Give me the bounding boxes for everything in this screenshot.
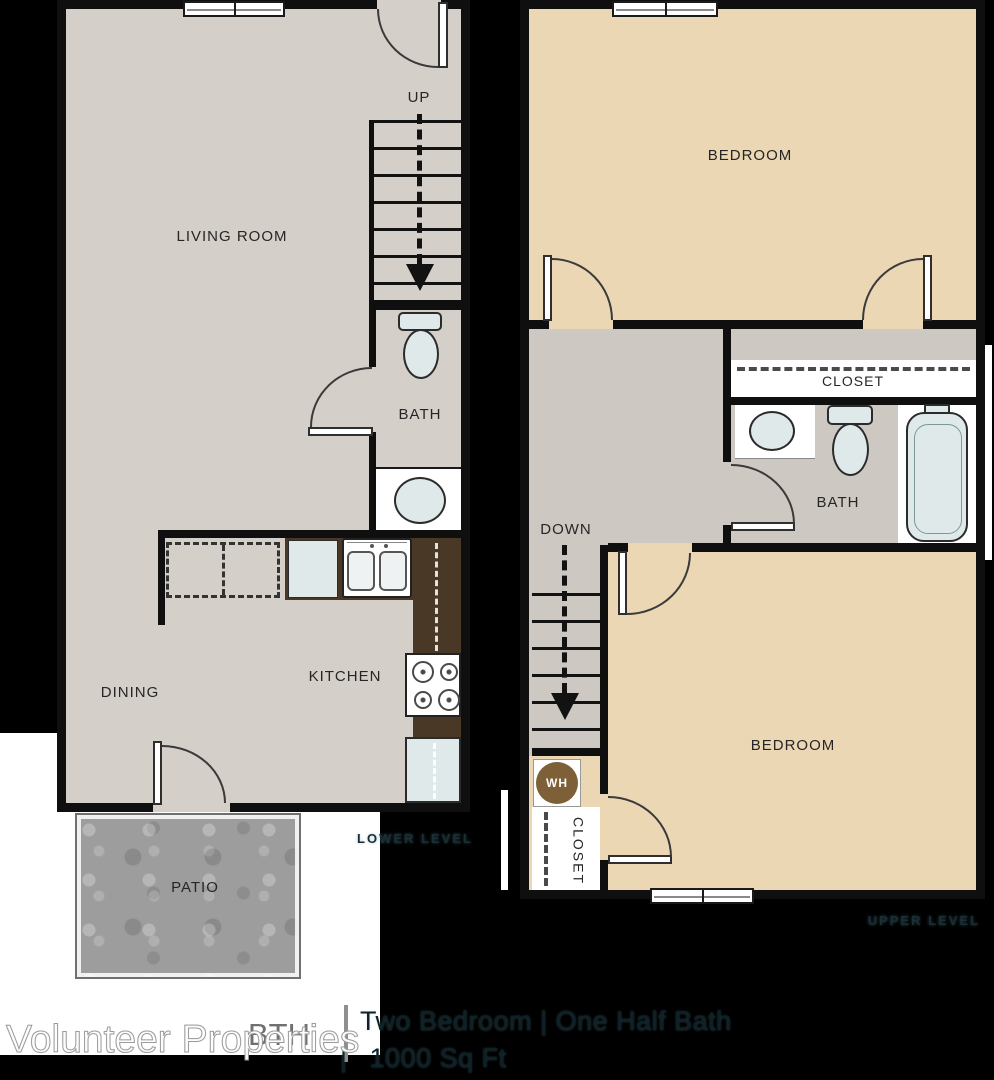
bedroom-bottom-label: BEDROOM xyxy=(718,738,868,755)
water-heater: WH xyxy=(536,762,578,804)
bedroom-bottom-door-gap xyxy=(628,543,692,552)
sqft-line: | 1000 Sq Ft xyxy=(340,1043,507,1074)
closet-bedroom-wall-lower xyxy=(600,860,608,890)
fridge-door-dash xyxy=(433,743,436,799)
bath1-door-leaf xyxy=(308,427,373,436)
sqft-value: 1000 Sq Ft xyxy=(370,1043,507,1073)
bedroom-top-label: BEDROOM xyxy=(675,148,825,165)
bedroom-top-door-gap-right xyxy=(863,320,923,329)
stove xyxy=(405,653,461,717)
closet-bedroom-wall-upper xyxy=(600,756,608,794)
stairs-down-arrow-line xyxy=(562,545,567,693)
bath1-label: BATH xyxy=(375,407,465,424)
sink-faucet-dot2 xyxy=(384,544,388,548)
toilet2-bowl xyxy=(832,423,869,476)
closet-bedroom-rod xyxy=(544,812,548,886)
bath2-label: BATH xyxy=(793,495,883,512)
kitchen-top-wall xyxy=(158,530,470,538)
kitchen-sink-unit xyxy=(342,538,412,598)
closet-hall-label: CLOSET xyxy=(793,374,913,389)
sink-basin-right xyxy=(379,551,407,591)
bath1-sink xyxy=(394,477,446,524)
bedroom-bottom-window xyxy=(650,888,754,904)
burner-4 xyxy=(438,689,460,711)
unit-title: Two Bedroom | One Half Bath xyxy=(360,1006,732,1037)
living-room-label: LIVING ROOM xyxy=(157,229,307,246)
counter-band-below-stove xyxy=(413,717,461,737)
patio-label: PATIO xyxy=(150,880,240,897)
optional-appliance-divider xyxy=(222,545,225,595)
burner-1 xyxy=(412,661,434,683)
stairs-down-right-wall xyxy=(600,545,608,756)
entry-door-leaf xyxy=(438,2,448,68)
burner-2 xyxy=(440,663,458,681)
kitchen-label: KITCHEN xyxy=(285,669,405,686)
dining-label: DINING xyxy=(70,685,190,702)
bath2-left-wall-upper xyxy=(723,405,731,462)
bedroom-top-left-door-leaf xyxy=(543,255,552,321)
bedroom-bottom-door-leaf xyxy=(618,551,627,615)
living-room-window xyxy=(183,1,285,17)
closet-hall-rod xyxy=(737,367,970,371)
stairs-down-bottom-wall xyxy=(532,748,608,756)
upper-level-label: UPPER LEVEL xyxy=(856,913,980,928)
bathtub-inner xyxy=(914,424,962,534)
bedroom-top-right-door-leaf xyxy=(923,255,932,321)
bathtub xyxy=(906,412,968,542)
wh-exterior-sliver xyxy=(501,790,508,890)
stairs-up-arrowhead xyxy=(406,264,434,291)
optional-appliance-dashed xyxy=(166,542,280,598)
stairs-up-arrow-line xyxy=(417,114,422,264)
up-label: UP xyxy=(389,90,449,107)
kitchen-cabinet xyxy=(288,540,338,598)
bedroom-top-window xyxy=(612,1,718,17)
wall-under-stairs xyxy=(372,300,461,310)
toilet1-bowl xyxy=(403,329,439,379)
sink-basin-left xyxy=(347,551,375,591)
closet-hall-left-wall xyxy=(723,329,731,405)
closet-bedroom-label: CLOSET xyxy=(570,812,590,890)
floorplan-canvas: UP BATH KITCHEN DINING LIVING ROOM xyxy=(0,0,994,1080)
lower-level-label: LOWER LEVEL xyxy=(355,831,475,846)
bath1-wall-upper xyxy=(369,310,376,367)
down-label: DOWN xyxy=(531,522,601,539)
bath1-wall-lower xyxy=(369,432,376,533)
toilet2-tank xyxy=(827,405,873,425)
upper-cabinet-dash xyxy=(435,543,438,651)
sink-faucet-dot1 xyxy=(370,544,374,548)
burner-3 xyxy=(414,691,432,709)
refrigerator xyxy=(405,737,461,803)
bedroom-top-door-gap-left xyxy=(549,320,613,329)
bath2-exterior-window xyxy=(985,345,992,560)
bath2-sink xyxy=(749,411,795,451)
tub-faucet xyxy=(924,404,950,414)
sink-backsplash-line xyxy=(347,542,407,543)
brand-watermark: Volunteer Properties xyxy=(6,1018,359,1062)
stairs-left-wall xyxy=(369,120,374,310)
dining-wall-stub xyxy=(158,530,165,625)
patio-door-leaf xyxy=(153,741,162,805)
stairs-down-arrowhead xyxy=(551,693,579,720)
